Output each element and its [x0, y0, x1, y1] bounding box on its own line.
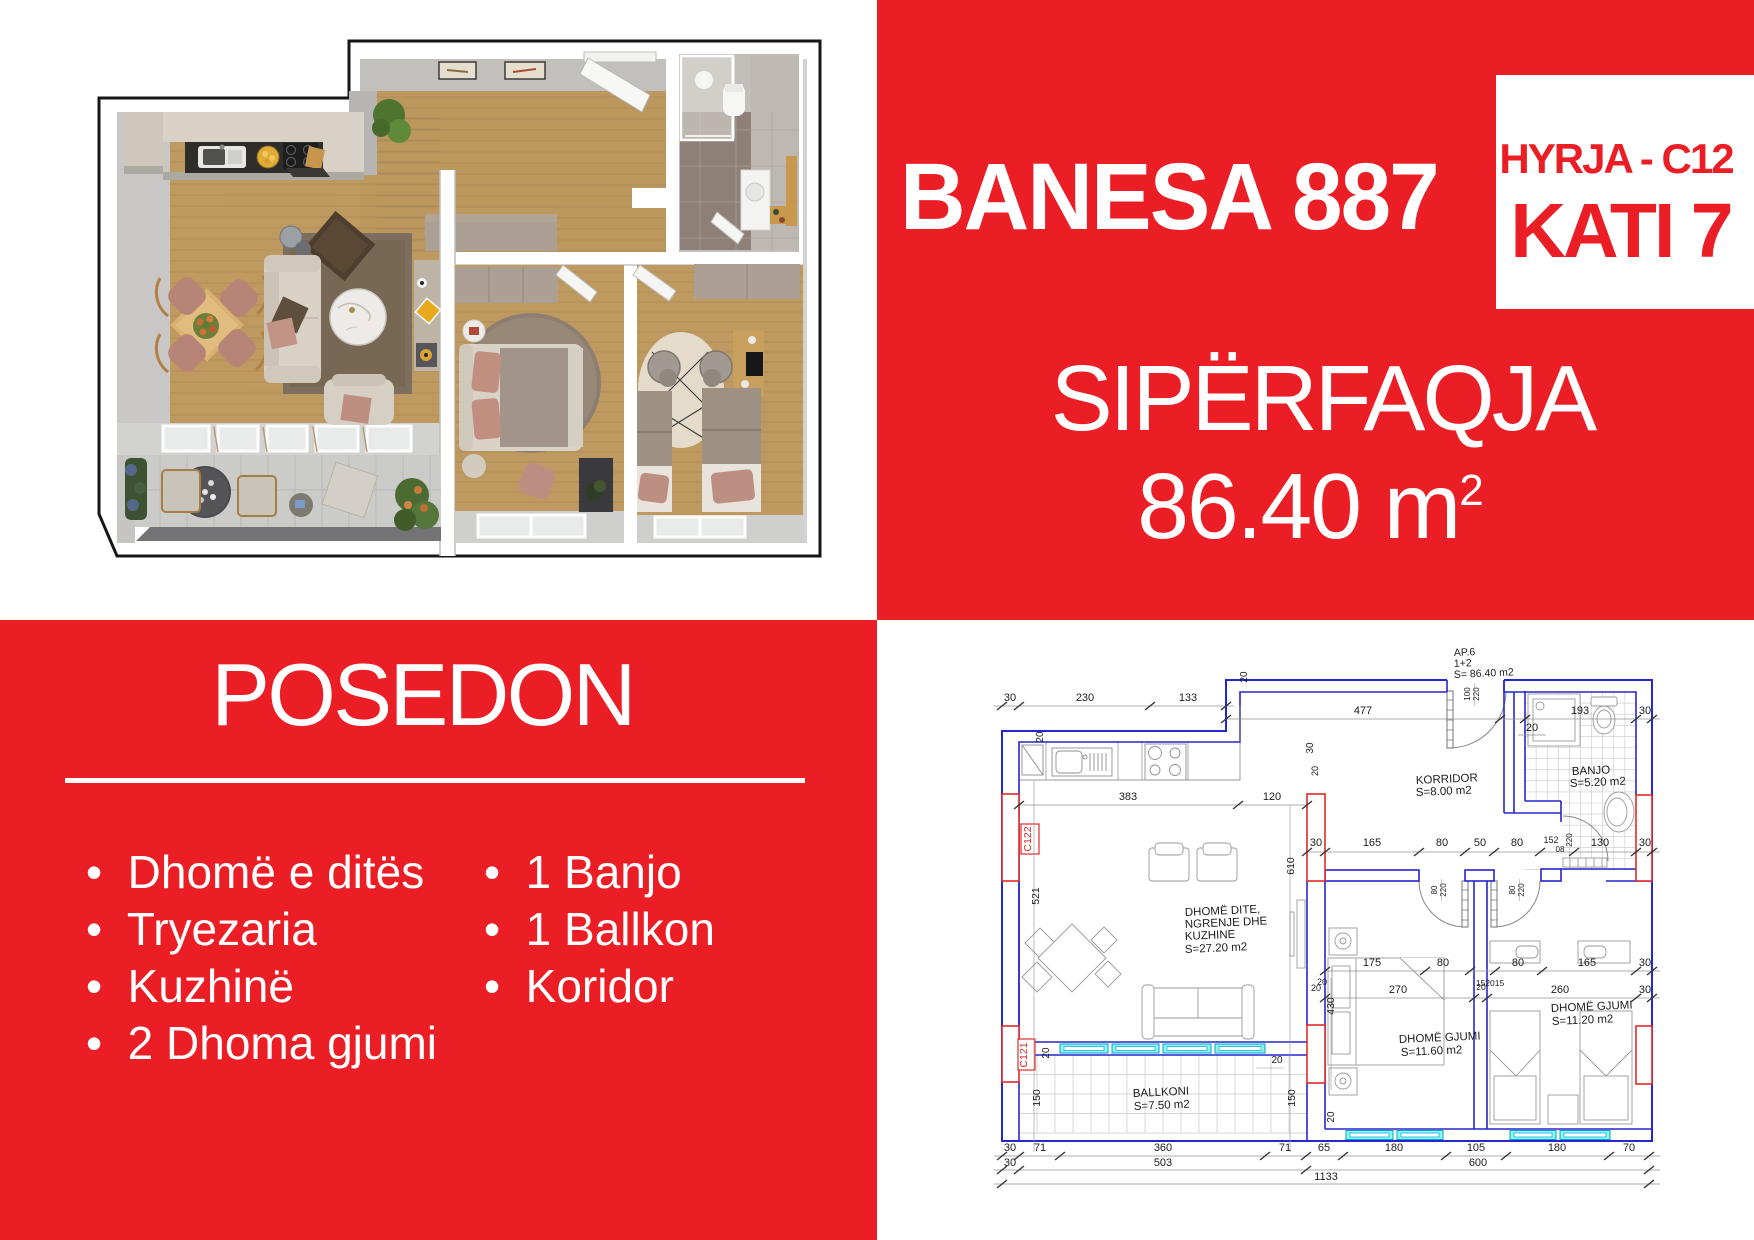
svg-text:30: 30: [1639, 957, 1651, 969]
svg-text:20: 20: [1326, 1111, 1337, 1123]
svg-text:105: 105: [1467, 1142, 1485, 1154]
svg-text:20: 20: [1311, 983, 1321, 993]
svg-text:50: 50: [1474, 837, 1486, 849]
svg-text:80: 80: [1512, 957, 1524, 969]
svg-text:70: 70: [1623, 1142, 1635, 1154]
svg-text:477: 477: [1354, 705, 1372, 717]
svg-text:30: 30: [1004, 1157, 1016, 1169]
svg-text:20: 20: [1271, 1055, 1283, 1066]
svg-text:220: 220: [1565, 833, 1574, 847]
svg-text:30: 30: [1004, 1142, 1016, 1154]
svg-text:80: 80: [1437, 957, 1449, 969]
svg-text:610: 610: [1285, 857, 1297, 875]
svg-text:430: 430: [1325, 997, 1337, 1015]
svg-text:80: 80: [1511, 837, 1523, 849]
svg-text:S=11.60 m2: S=11.60 m2: [1401, 1044, 1463, 1059]
svg-text:80: 80: [1436, 837, 1448, 849]
svg-text:20: 20: [1035, 731, 1046, 743]
svg-text:KUZHINE: KUZHINE: [1185, 929, 1236, 943]
svg-text:165: 165: [1578, 957, 1596, 969]
svg-text:30: 30: [1639, 837, 1651, 849]
svg-text:175: 175: [1363, 957, 1381, 969]
svg-text:20: 20: [1526, 722, 1538, 734]
svg-text:80: 80: [1430, 885, 1439, 894]
svg-text:120: 120: [1263, 791, 1281, 803]
svg-text:100: 100: [1463, 687, 1472, 701]
svg-text:30: 30: [1004, 692, 1016, 704]
svg-text:S=27.20 m2: S=27.20 m2: [1185, 941, 1248, 956]
svg-text:30: 30: [1639, 984, 1651, 996]
svg-text:DHOMË GJUMI: DHOMË GJUMI: [1399, 1030, 1481, 1046]
svg-text:71: 71: [1034, 1142, 1046, 1154]
svg-text:20: 20: [1476, 982, 1486, 992]
svg-text:130: 130: [1591, 837, 1609, 849]
svg-text:150: 150: [1031, 1089, 1043, 1107]
svg-text:383: 383: [1119, 791, 1137, 803]
svg-text:193: 193: [1571, 705, 1589, 717]
svg-text:270: 270: [1389, 984, 1407, 996]
svg-text:220: 220: [1472, 687, 1481, 701]
svg-text:180: 180: [1385, 1142, 1403, 1154]
svg-text:65: 65: [1318, 1142, 1330, 1154]
svg-text:C122: C122: [1022, 826, 1034, 851]
svg-text:20: 20: [1239, 671, 1250, 683]
svg-text:S=5.20 m2: S=5.20 m2: [1570, 776, 1626, 790]
svg-text:20: 20: [1041, 1047, 1052, 1059]
svg-text:20: 20: [1310, 766, 1320, 776]
svg-text:C121: C121: [1018, 1042, 1030, 1067]
svg-text:152: 152: [1543, 835, 1558, 845]
svg-text:521: 521: [1030, 887, 1042, 905]
svg-text:71: 71: [1279, 1142, 1291, 1154]
svg-text:30: 30: [1305, 742, 1316, 754]
svg-text:165: 165: [1363, 837, 1381, 849]
svg-text:180: 180: [1548, 1142, 1566, 1154]
svg-text:08: 08: [1556, 845, 1565, 854]
svg-text:503: 503: [1154, 1157, 1172, 1169]
svg-text:220: 220: [1439, 883, 1448, 897]
svg-text:S=7.50 m2: S=7.50 m2: [1134, 1099, 1190, 1113]
svg-text:BALLKONI: BALLKONI: [1133, 1086, 1190, 1100]
svg-text:133: 133: [1179, 692, 1197, 704]
svg-text:S= 86.40 m2: S= 86.40 m2: [1454, 666, 1514, 681]
svg-text:80: 80: [1508, 885, 1517, 894]
svg-text:30: 30: [1310, 837, 1322, 849]
svg-text:600: 600: [1469, 1157, 1487, 1169]
svg-text:30: 30: [1639, 705, 1651, 717]
svg-text:230: 230: [1076, 692, 1094, 704]
svg-text:150: 150: [1286, 1089, 1298, 1107]
svg-text:S=8.00 m2: S=8.00 m2: [1416, 785, 1472, 799]
svg-text:220: 220: [1517, 883, 1526, 897]
svg-text:360: 360: [1154, 1142, 1172, 1154]
svg-text:260: 260: [1551, 984, 1569, 996]
svg-text:1133: 1133: [1314, 1171, 1338, 1183]
